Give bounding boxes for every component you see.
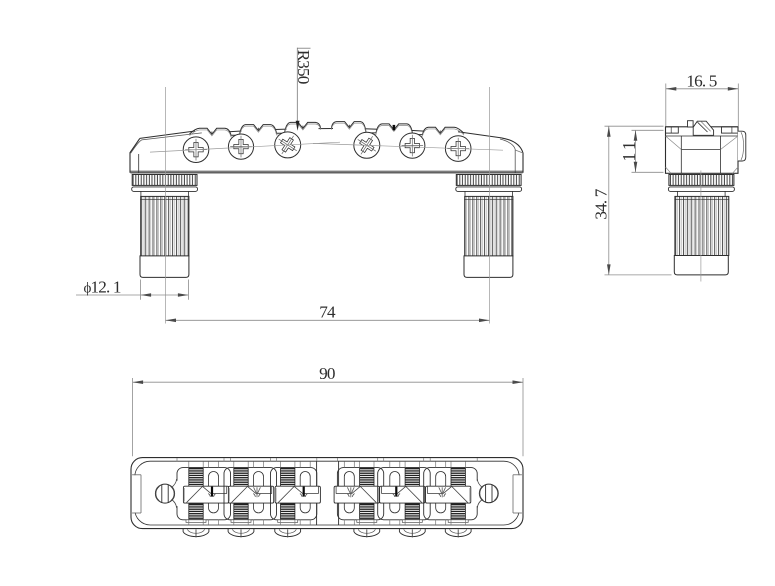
svg-text:R350: R350	[294, 50, 313, 84]
svg-text:ϕ12. 1: ϕ12. 1	[84, 278, 121, 297]
svg-text:34. 7: 34. 7	[591, 188, 610, 219]
svg-text:16. 5: 16. 5	[686, 71, 716, 90]
svg-text:11: 11	[619, 138, 639, 162]
svg-text:74: 74	[319, 303, 336, 322]
svg-text:90: 90	[319, 364, 335, 383]
